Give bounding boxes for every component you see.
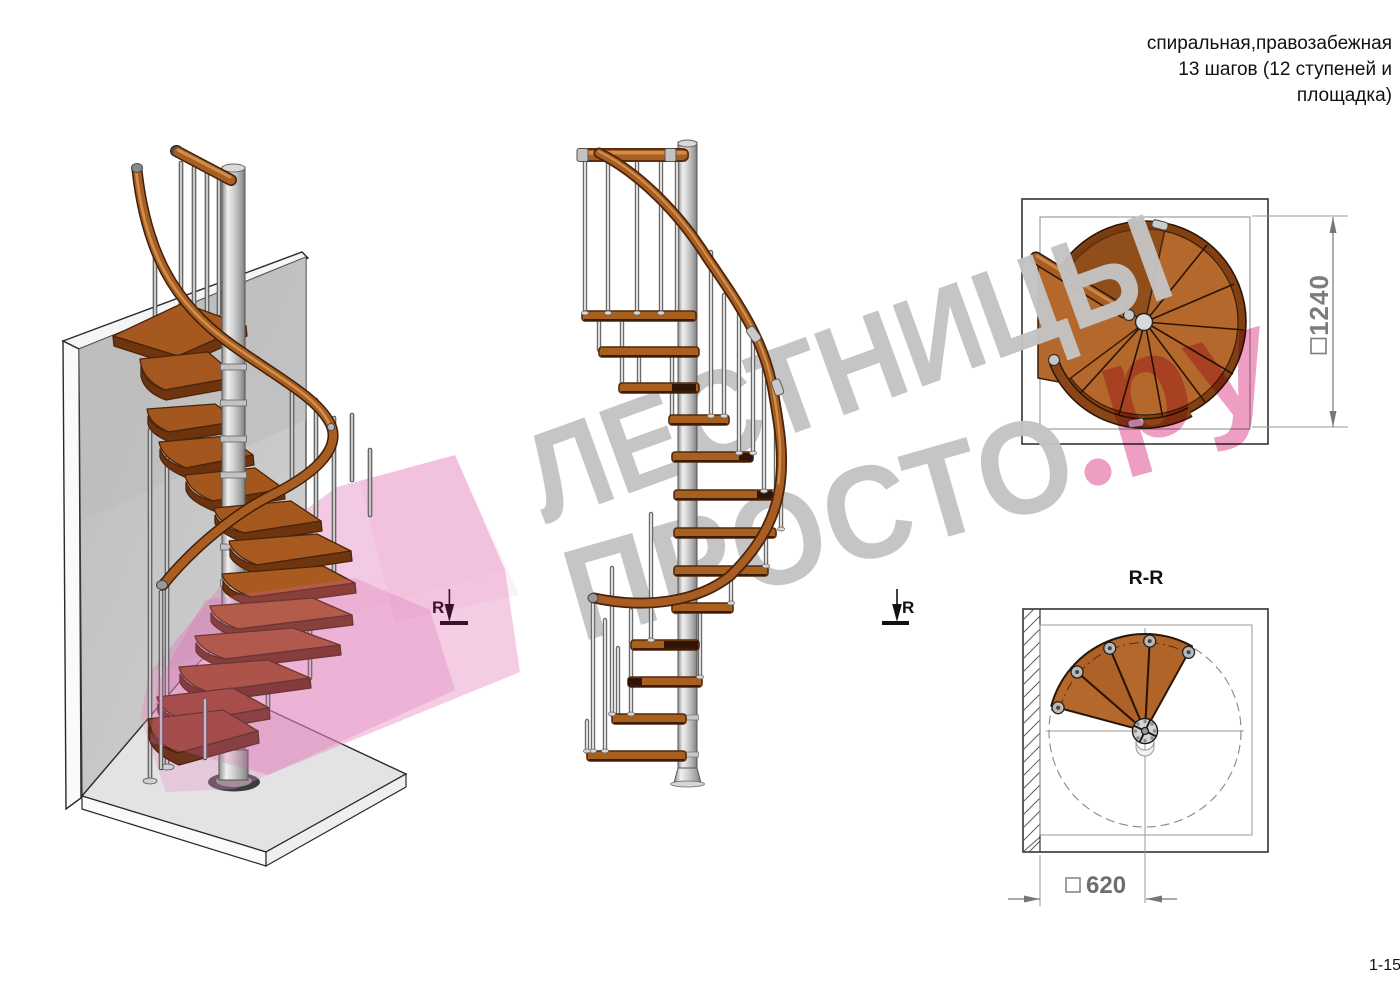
svg-text:R-R: R-R (1129, 567, 1164, 589)
svg-text:спиральная,правозабежная: спиральная,правозабежная (1147, 33, 1392, 54)
svg-text:1-15: 1-15 (1369, 957, 1400, 974)
svg-text:1240: 1240 (1304, 274, 1334, 336)
svg-text:R: R (432, 598, 444, 617)
svg-text:620: 620 (1086, 872, 1126, 899)
svg-text:13 шагов (12 ступеней и: 13 шагов (12 ступеней и (1178, 59, 1392, 80)
svg-text:площадка): площадка) (1297, 85, 1392, 106)
svg-text:R: R (902, 598, 914, 617)
